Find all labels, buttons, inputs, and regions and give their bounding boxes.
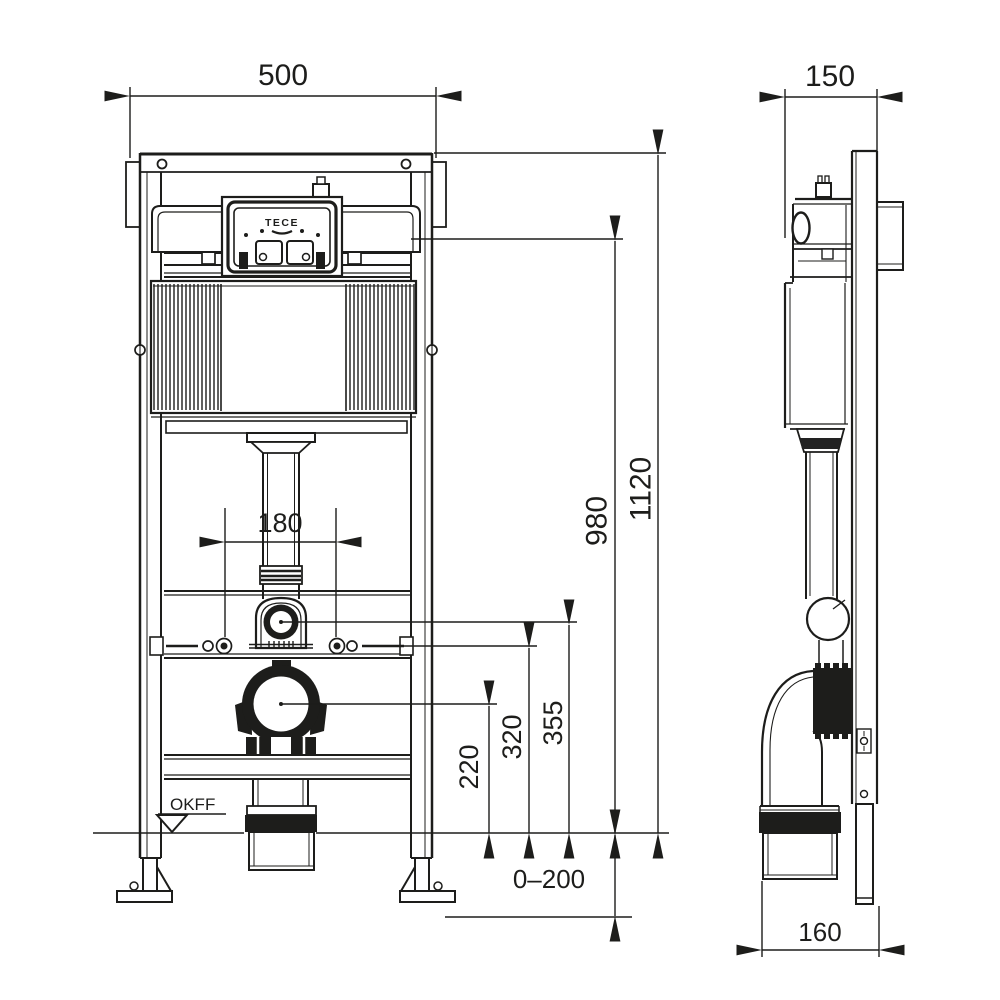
left-foot <box>117 858 172 902</box>
dim-bolt-spacing: 180 <box>257 508 302 538</box>
supply-connection-cap <box>317 177 325 184</box>
left-anchor-plate <box>126 162 140 227</box>
dim-frame-height: 1120 <box>625 457 658 522</box>
dim-frame-width: 500 <box>258 59 308 92</box>
rubber-seal-side <box>759 812 841 833</box>
floor-level: OKFF <box>93 795 669 917</box>
dim-frame-depth: 150 <box>805 60 855 93</box>
side-view <box>759 151 903 904</box>
cistern-body <box>151 281 416 433</box>
floor-level-label: OKFF <box>170 795 215 814</box>
valve-opening <box>793 213 810 244</box>
right-foot <box>400 858 455 902</box>
wall-bracket <box>877 202 903 270</box>
dim-foot-adjustment: 0–200 <box>513 864 585 894</box>
rail-hole <box>861 791 868 798</box>
funnel-seal <box>800 438 841 449</box>
waste-socket <box>249 832 314 870</box>
brand-logo: TECE <box>265 217 299 229</box>
rod-bracket <box>150 637 163 655</box>
right-anchor-plate <box>432 162 446 227</box>
technical-drawing-page: TECE <box>0 0 1000 1000</box>
cistern-top-right <box>342 206 420 252</box>
cistern-side <box>785 176 852 452</box>
waste-socket-side <box>763 833 837 879</box>
dim-flush-bend-height: 355 <box>538 700 568 745</box>
flush-bend-side <box>806 452 849 668</box>
dim-fixing-bolt-height: 320 <box>497 714 527 759</box>
installation-frame-drawing: TECE <box>0 0 1000 1000</box>
waste-pipe <box>245 779 317 870</box>
mounting-rail <box>852 151 877 904</box>
supply-connection <box>313 184 329 197</box>
flush-plate-unit: TECE <box>222 197 342 276</box>
mounting-tab <box>316 252 325 269</box>
top-bar-hole <box>402 160 411 169</box>
rubber-seal <box>245 815 317 832</box>
supply-connection-side <box>816 183 831 197</box>
mounting-tab <box>239 252 248 269</box>
outlet-connector-block <box>813 668 851 734</box>
flush-button-right <box>287 241 313 264</box>
waste-bend-side <box>759 663 851 879</box>
dim-waste-outlet-height: 220 <box>454 744 484 789</box>
waste-outlet <box>235 665 327 755</box>
top-bar-hole <box>158 160 167 169</box>
flush-button-left <box>256 241 282 264</box>
dim-cistern-top-height: 980 <box>581 496 614 546</box>
dim-waste-bend-depth: 160 <box>798 917 841 947</box>
